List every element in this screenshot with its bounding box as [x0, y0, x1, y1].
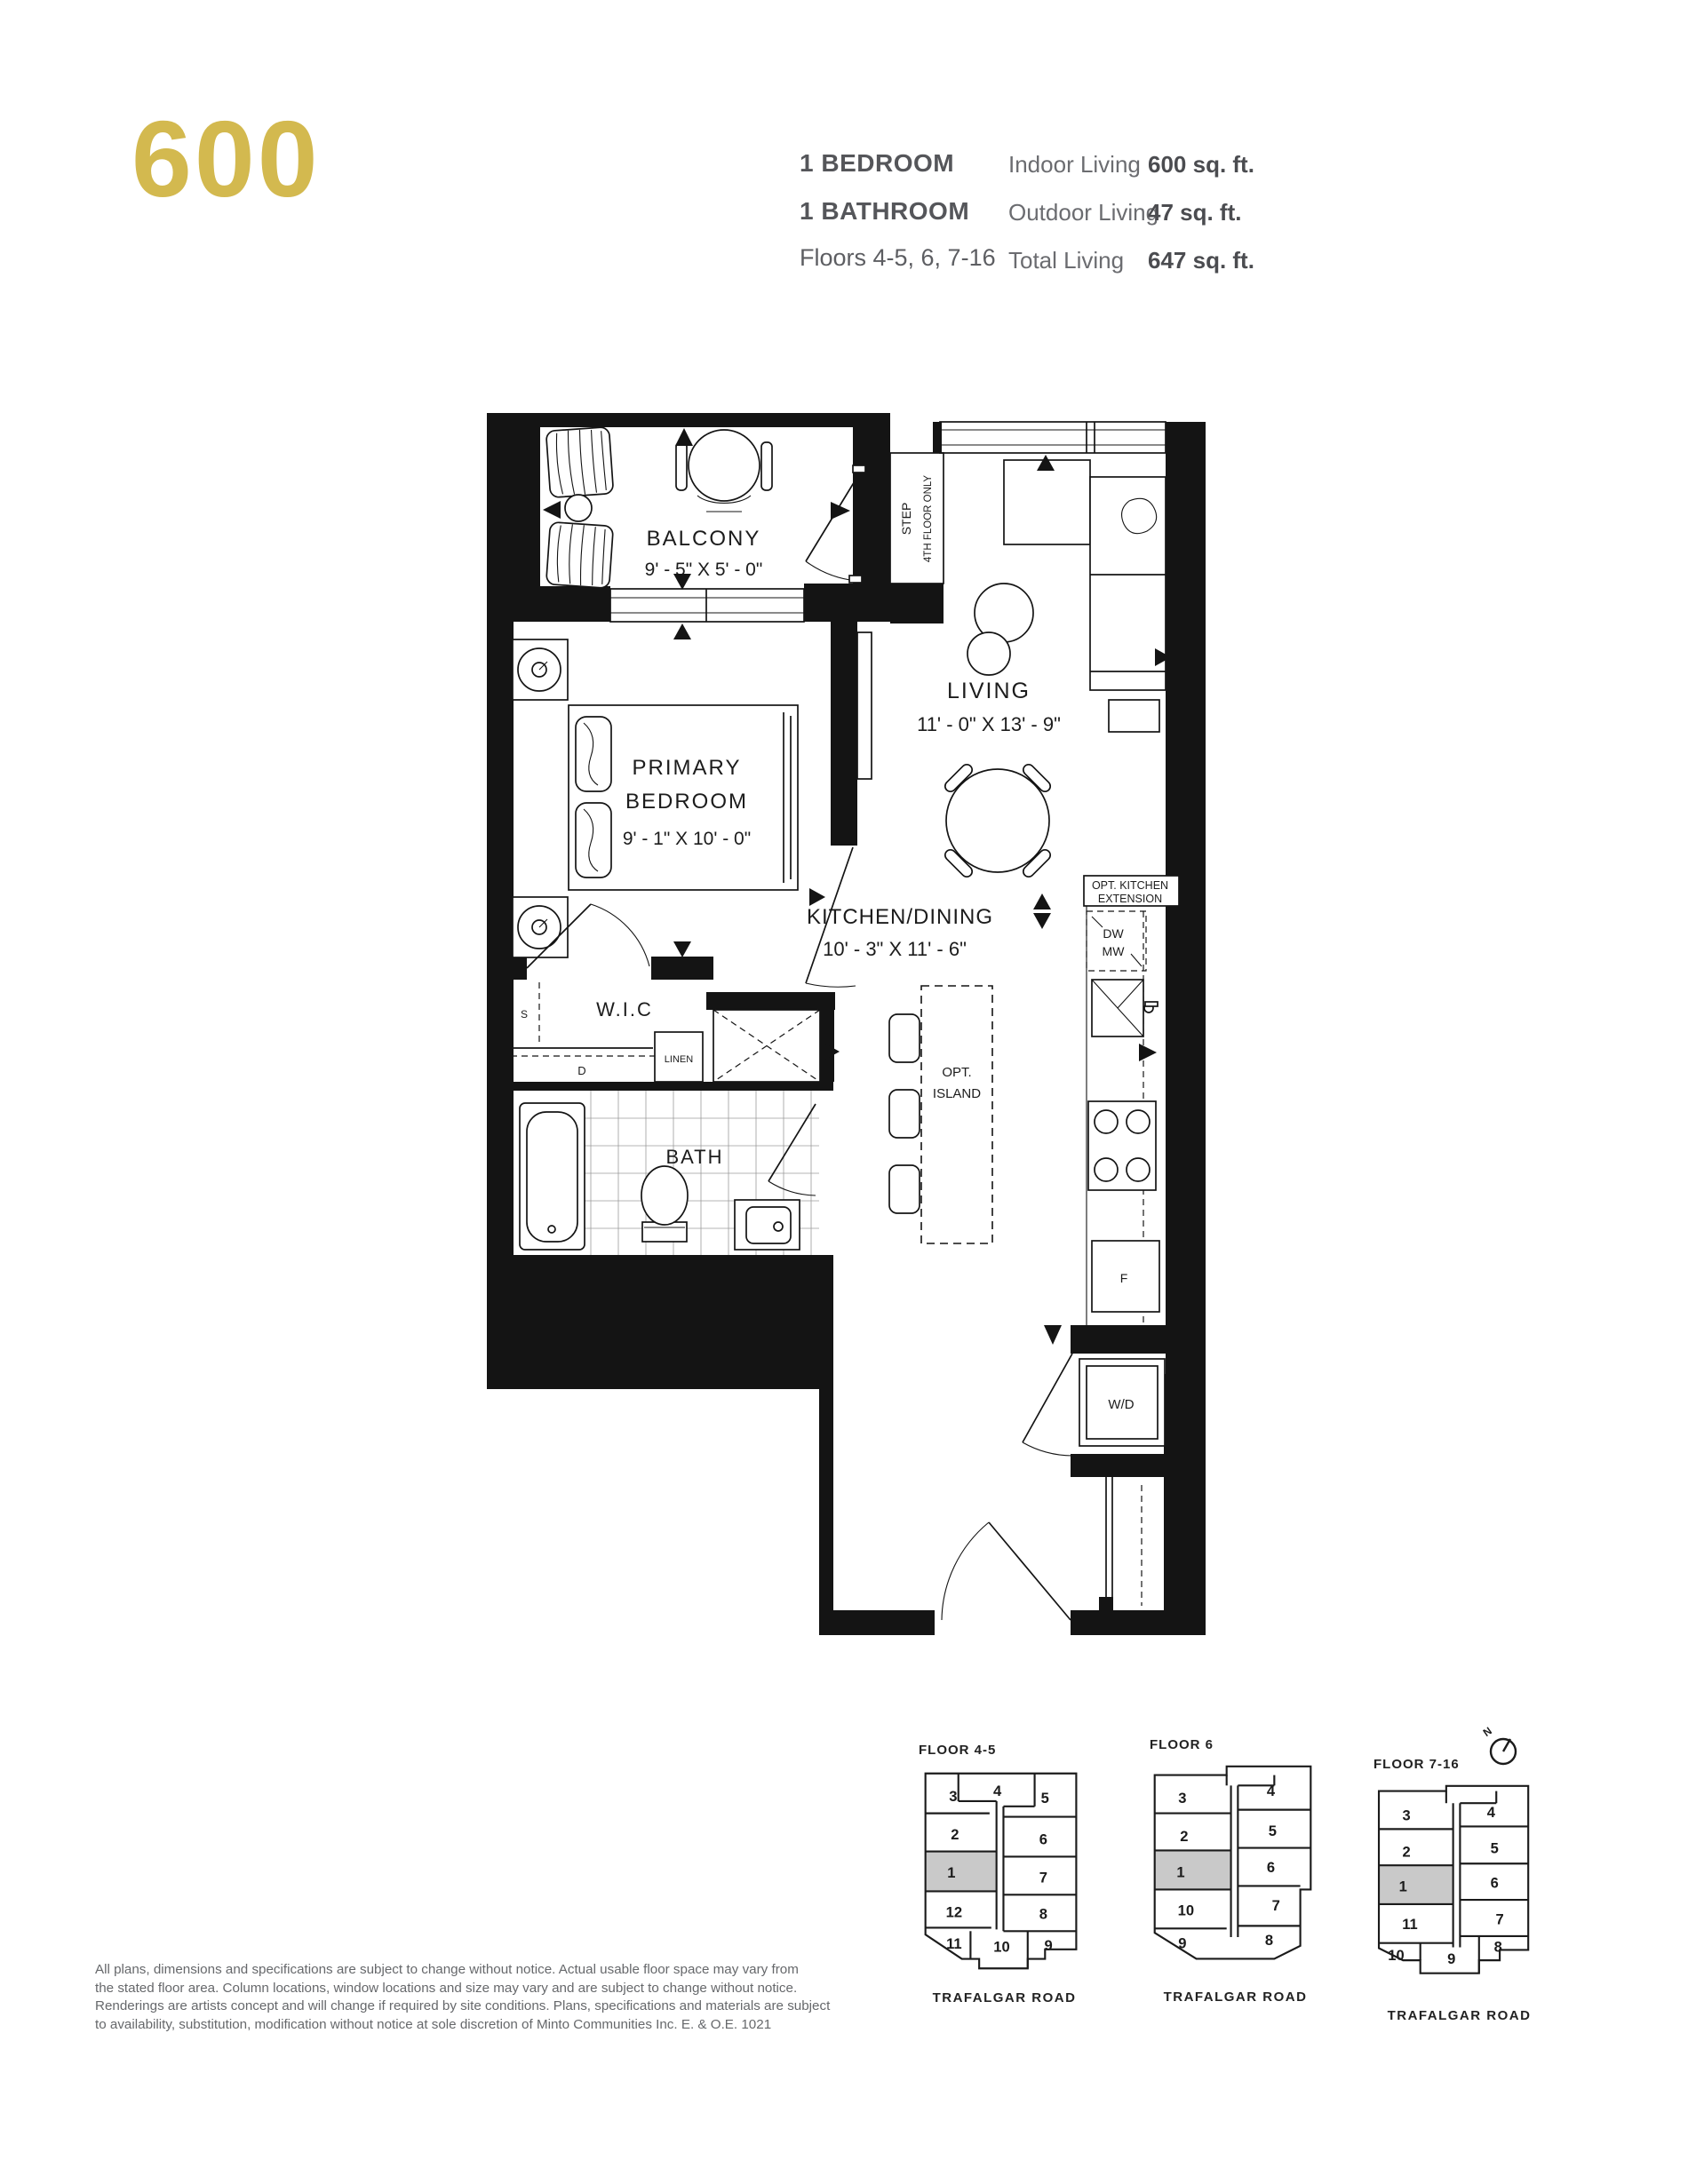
bath-label: BATH	[665, 1146, 723, 1168]
unit-number: 7	[1496, 1910, 1504, 1927]
shaft-closet	[713, 1010, 820, 1082]
disclaimer-line: Renderings are artists concept and will …	[95, 1997, 895, 2016]
unit-number: 6	[1039, 1831, 1047, 1848]
entry-closet	[1099, 1477, 1142, 1610]
unit-number: 1	[1399, 1878, 1407, 1894]
dining-table	[946, 769, 1049, 872]
balcony-table	[689, 430, 760, 501]
road-label: TRAFALGAR ROAD	[1368, 2008, 1550, 2023]
fridge-label: F	[1120, 1271, 1128, 1285]
unit-number: 6	[1491, 1874, 1499, 1891]
unit-number: 5	[1269, 1823, 1277, 1839]
bedroom-label-1: PRIMARY	[633, 756, 742, 780]
island-label-2: ISLAND	[933, 1086, 981, 1101]
unit-number: 1	[1176, 1864, 1184, 1881]
keyplan-floor-4-5: FLOOR 4-5 3 4 5 2 6 1 7 12 8	[913, 1743, 1095, 2005]
unit-number: 10	[993, 1939, 1009, 1956]
opt-kitchen-label-2: EXTENSION	[1098, 893, 1162, 905]
unit-number: 9	[1178, 1935, 1186, 1952]
ottoman	[967, 632, 1010, 675]
unit-number: 8	[1265, 1932, 1273, 1949]
unit-number: 4	[1267, 1783, 1276, 1799]
kitchen-dims: 10' - 3" X 11' - 6"	[823, 938, 967, 960]
step-note: STEP 4TH FLOOR ONLY	[890, 453, 944, 584]
north-arrow-icon: N	[1477, 1723, 1525, 1771]
stat-value-total: 647 sq. ft.	[1148, 247, 1254, 274]
unit-number: 3	[1403, 1807, 1411, 1824]
stat-value-indoor: 600 sq. ft.	[1148, 151, 1254, 179]
kitchen-label: KITCHEN/DINING	[807, 905, 993, 929]
highlighted-unit	[926, 1852, 997, 1892]
opt-kitchen-label-1: OPT. KITCHEN	[1092, 879, 1168, 892]
unit-number: 7	[1272, 1897, 1280, 1914]
disclaimer-line: the stated floor area. Column locations,…	[95, 1980, 895, 1998]
unit-number: 12	[946, 1904, 962, 1921]
kitchen-island: OPT. ISLAND	[889, 986, 992, 1243]
unit-number: 10	[1178, 1902, 1194, 1919]
step-sublabel: 4TH FLOOR ONLY	[923, 475, 934, 563]
wic-label: W.I.C	[596, 998, 653, 1021]
unit-number: 8	[1494, 1938, 1502, 1955]
island-label-1: OPT.	[942, 1065, 971, 1080]
disclaimer: All plans, dimensions and specifications…	[95, 1961, 895, 2034]
keyplan-title: FLOOR 4-5	[919, 1743, 1095, 1758]
keyplan-title: FLOOR 6	[1150, 1737, 1326, 1752]
unit-number: 4	[1487, 1804, 1496, 1821]
unit-number: 8	[1039, 1906, 1047, 1923]
bedroom-label-2: BEDROOM	[625, 790, 748, 814]
unit-number: 9	[1045, 1937, 1053, 1954]
laundry-closet: W/D	[1079, 1359, 1165, 1446]
unit-number: 6	[1267, 1859, 1275, 1876]
stat-value-outdoor: 47 sq. ft.	[1148, 199, 1241, 226]
highlighted-unit	[1155, 1850, 1231, 1889]
bathroom-count: 1 BATHROOM	[800, 197, 969, 226]
window-living	[940, 422, 1166, 453]
unit-number: 5	[1041, 1790, 1049, 1807]
disclaimer-line: All plans, dimensions and specifications…	[95, 1961, 895, 1980]
dim-marker-icon	[1033, 893, 1051, 929]
keyplan-map: 3 4 5 2 6 1 7 12 8 11 10 9	[913, 1765, 1091, 1977]
unit-number: 7	[1039, 1870, 1047, 1886]
media-unit	[1004, 460, 1090, 544]
road-label: TRAFALGAR ROAD	[913, 1990, 1095, 2005]
balcony-label: BALCONY	[647, 527, 761, 551]
highlighted-unit	[1379, 1865, 1453, 1904]
dw-label: DW	[1103, 926, 1124, 941]
stove	[1088, 1101, 1156, 1190]
washer-dryer-label: W/D	[1108, 1397, 1134, 1412]
balcony-dims: 9' - 5" X 5' - 0"	[645, 560, 763, 580]
unit-number: 3	[949, 1788, 957, 1805]
living-label: LIVING	[947, 679, 1031, 703]
stat-label-total: Total Living	[1008, 247, 1124, 274]
bedroom-dims: 9' - 1" X 10' - 0"	[623, 829, 751, 849]
kitchen-sink	[1092, 980, 1158, 1036]
unit-number: 10	[1388, 1947, 1404, 1964]
unit-number: 4	[993, 1783, 1002, 1799]
unit-number: 600	[131, 105, 321, 213]
bathtub	[520, 1103, 585, 1250]
step-label: STEP	[899, 503, 913, 536]
wall-unit	[857, 632, 872, 779]
living-furniture	[943, 460, 1166, 879]
keyplan-floor-6: FLOOR 6 3 2 1 10 9 4 5 6 7 8	[1144, 1737, 1326, 2005]
unit-number: 1	[947, 1864, 955, 1881]
vanity-sink	[735, 1200, 800, 1250]
floor-plan: STEP 4TH FLOOR ONLY BALCONY 9' - 5" X 5'…	[484, 410, 1239, 1645]
floorplan-sheet: 600 1 BEDROOM 1 BATHROOM Floors 4-5, 6, …	[0, 0, 1688, 2184]
keyplan-floor-7-16: FLOOR 7-16 3 2 1 11 10 4 5 6	[1368, 1757, 1550, 2023]
balcony-side-table	[565, 495, 592, 521]
drawer-label: D	[577, 1064, 585, 1077]
shelf-label: S	[521, 1008, 528, 1021]
kitchen-counter: OPT. KITCHEN EXTENSION DW MW F	[1084, 876, 1179, 1325]
unit-number: 3	[1178, 1790, 1186, 1807]
unit-number: 11	[946, 1935, 962, 1952]
stat-label-indoor: Indoor Living	[1008, 151, 1141, 179]
unit-number: 2	[1180, 1828, 1188, 1845]
unit-number: 11	[1402, 1916, 1417, 1933]
floors-range: Floors 4-5, 6, 7-16	[800, 244, 996, 272]
unit-number: 2	[1403, 1843, 1411, 1860]
disclaimer-line: to availability, substitution, modificat…	[95, 2016, 895, 2035]
road-label: TRAFALGAR ROAD	[1144, 1989, 1326, 2005]
linen-label: LINEN	[665, 1054, 693, 1065]
walk-in-closet: S D W.I.C LINEN	[511, 982, 703, 1082]
living-dims: 11' - 0" X 13' - 9"	[917, 713, 1061, 735]
unit-number: 9	[1447, 1950, 1455, 1967]
unit-number: 2	[951, 1826, 959, 1843]
mw-label: MW	[1103, 944, 1126, 958]
keyplan-map: 3 2 1 10 9 4 5 6 7 8	[1144, 1759, 1322, 1976]
keyplan-map: 3 2 1 11 10 4 5 6 7 8 9	[1368, 1779, 1546, 1995]
window-bedroom	[610, 589, 804, 622]
stat-label-outdoor: Outdoor Living	[1008, 199, 1159, 226]
north-label: N	[1481, 1725, 1494, 1739]
toilet	[641, 1166, 688, 1242]
side-table	[1109, 700, 1159, 732]
bedroom-count: 1 BEDROOM	[800, 149, 954, 178]
unit-number: 5	[1491, 1840, 1499, 1857]
